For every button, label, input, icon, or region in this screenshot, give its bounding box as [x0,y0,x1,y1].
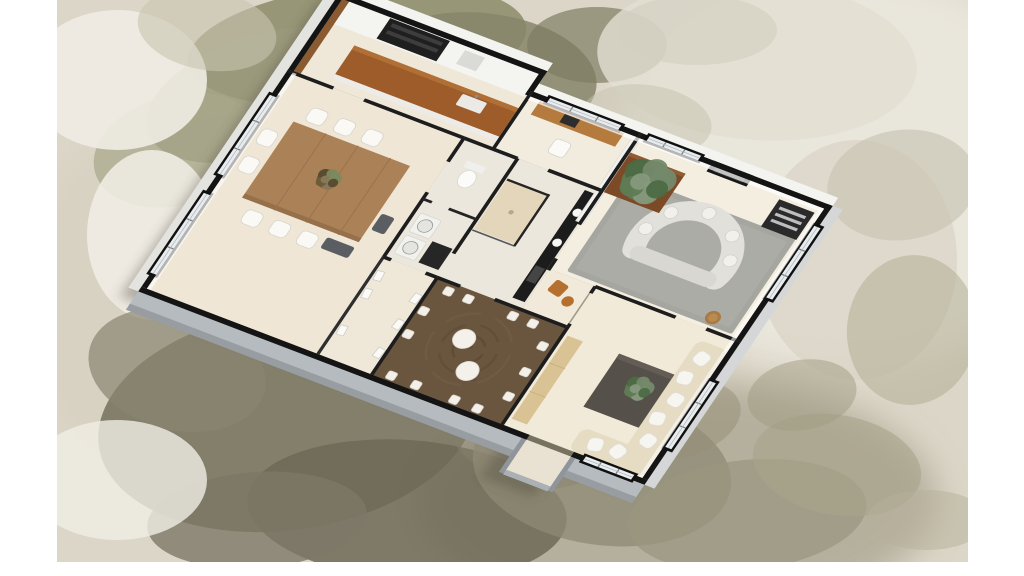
floorplan-illustration [0,0,1024,576]
